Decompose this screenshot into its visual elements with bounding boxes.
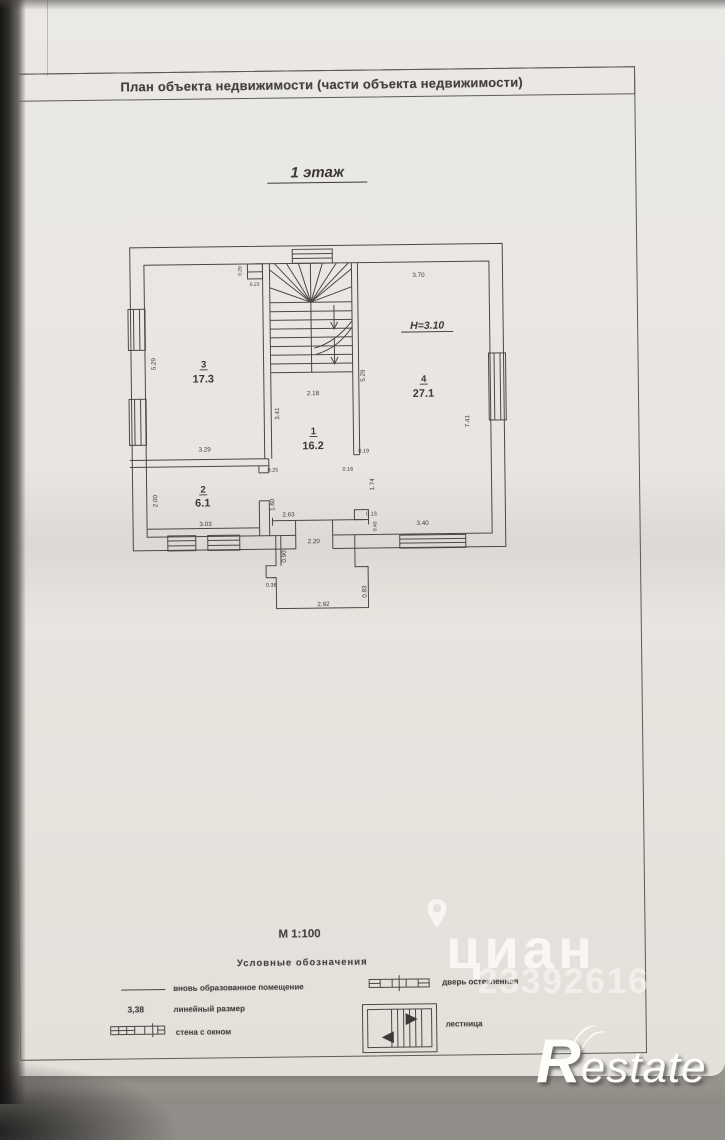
room4-number: 4 xyxy=(421,374,427,385)
room1-area: 16.2 xyxy=(302,440,324,452)
dim-tick-025: 0.25 xyxy=(268,468,279,474)
window-bottom-room4 xyxy=(400,534,466,548)
stairs-symbol xyxy=(361,1003,438,1054)
document-title: План объекта недвижимости (части объекта… xyxy=(120,74,523,94)
dim-door-263: 2.63 xyxy=(282,511,295,518)
room1-number: 1 xyxy=(311,426,317,437)
dim-room4-right: 7.41 xyxy=(464,415,471,428)
dim-tick-019: 0.19 xyxy=(358,449,369,455)
dim-room1-top: 2.18 xyxy=(307,390,320,397)
dim-tick-040: 0.40 xyxy=(373,521,379,531)
dim-door-174: 1.74 xyxy=(369,478,376,491)
dim-porch-083: 0.83 xyxy=(361,585,368,598)
linear-size-value: 3,38 xyxy=(127,1004,144,1014)
restate-swoosh-icon xyxy=(564,1018,610,1058)
dim-door-220: 2.20 xyxy=(308,538,321,545)
restate-logo: Restate xyxy=(536,1022,725,1104)
dim-room4-top: 3.70 xyxy=(412,272,425,279)
room3-area: 17.3 xyxy=(193,373,215,385)
dim-porch-036: 0.36 xyxy=(266,583,277,589)
room2-area: 6.1 xyxy=(195,497,210,509)
chimney-block xyxy=(292,249,332,263)
staircase xyxy=(269,263,352,373)
dim-stair-right: 5.29 xyxy=(360,369,367,382)
entrance-porch xyxy=(266,535,369,609)
map-pin-icon xyxy=(426,898,448,930)
stair-top-notch xyxy=(247,264,262,279)
legend-title: Условные обозначения xyxy=(237,957,368,970)
document-sheet: План объекта недвижимости (части объекта… xyxy=(0,0,719,1080)
dim-porch-bottom: 2.92 xyxy=(317,601,330,608)
photo-left-edge xyxy=(0,0,26,1104)
ceiling-height-note: H=3.10 xyxy=(410,320,444,332)
dim-porch-090: 0.90 xyxy=(281,550,288,563)
room2-number: 2 xyxy=(200,485,205,496)
room4-area: 27.1 xyxy=(413,388,435,400)
dim-room1-left: 3.41 xyxy=(274,407,281,420)
dim-window-340: 3.40 xyxy=(416,520,429,527)
watermark-digits: 23392616 xyxy=(478,962,650,1002)
new-premises-label: вновь образованное помещение xyxy=(173,982,304,993)
dim-room2-bottom: 3.03 xyxy=(199,521,212,528)
floor-title: 1 этаж xyxy=(267,164,367,184)
room3-number: 3 xyxy=(201,359,206,370)
stairs-label: лестница xyxy=(446,1019,483,1028)
window-bottom-room2-a xyxy=(168,536,196,551)
scale-label: М 1:100 xyxy=(245,928,355,941)
wall-window-symbol xyxy=(110,1022,170,1039)
dim-room3-bottom: 3.29 xyxy=(198,446,211,453)
dim-door-160: 1.60 xyxy=(269,498,276,511)
wall-window-label: стена с окном xyxy=(176,1027,232,1037)
dim-tick-013: 0.13 xyxy=(366,511,377,517)
wall-room3-right xyxy=(262,264,271,459)
photo-corner-shadow xyxy=(0,1060,180,1140)
dim-room2-left: 2.00 xyxy=(152,494,159,507)
wall-room1-room4-with-door xyxy=(351,263,368,520)
dim-stair-023: 0.23 xyxy=(250,282,260,288)
dim-room3-left: 5.29 xyxy=(151,357,158,370)
dim-stair-029: 0.29 xyxy=(237,266,243,276)
linear-size-label: линейный размер xyxy=(173,1004,245,1014)
photo-top-edge xyxy=(0,0,725,10)
dim-tick-016: 0.16 xyxy=(343,467,354,473)
wall-room2-top xyxy=(130,459,269,468)
window-bottom-room2-b xyxy=(208,535,240,550)
glazed-door-symbol xyxy=(368,974,432,993)
floor-plan: 3 17.3 1 16.2 4 27.1 2 6.1 H=3.10 3.70 7… xyxy=(114,233,529,628)
